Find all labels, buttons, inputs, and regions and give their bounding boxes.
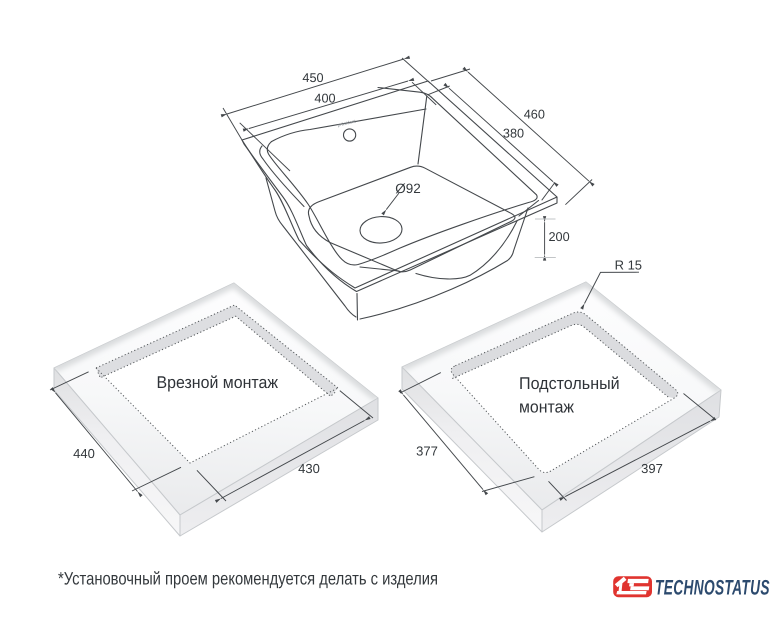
- svg-text:200: 200: [549, 230, 570, 244]
- svg-text:Врезной монтаж: Врезной монтаж: [157, 373, 279, 392]
- svg-text:TECHNOSTATUS: TECHNOSTATUS: [655, 577, 770, 600]
- svg-text:R 15: R 15: [615, 258, 642, 273]
- svg-text:380: 380: [503, 127, 524, 141]
- svg-text:460: 460: [524, 107, 545, 121]
- svg-text:450: 450: [302, 71, 323, 85]
- svg-text:Подстольный: Подстольный: [519, 374, 620, 393]
- svg-text:*Установочный проем рекомендуе: *Установочный проем рекомендуется делать…: [58, 569, 438, 589]
- svg-text:400: 400: [314, 92, 335, 106]
- svg-text:монтаж: монтаж: [519, 398, 575, 417]
- svg-text:präsident: präsident: [337, 118, 357, 127]
- svg-text:Ø92: Ø92: [395, 181, 421, 196]
- svg-text:430: 430: [298, 461, 320, 476]
- svg-text:397: 397: [641, 461, 663, 476]
- svg-text:377: 377: [416, 444, 438, 459]
- svg-text:440: 440: [73, 446, 95, 461]
